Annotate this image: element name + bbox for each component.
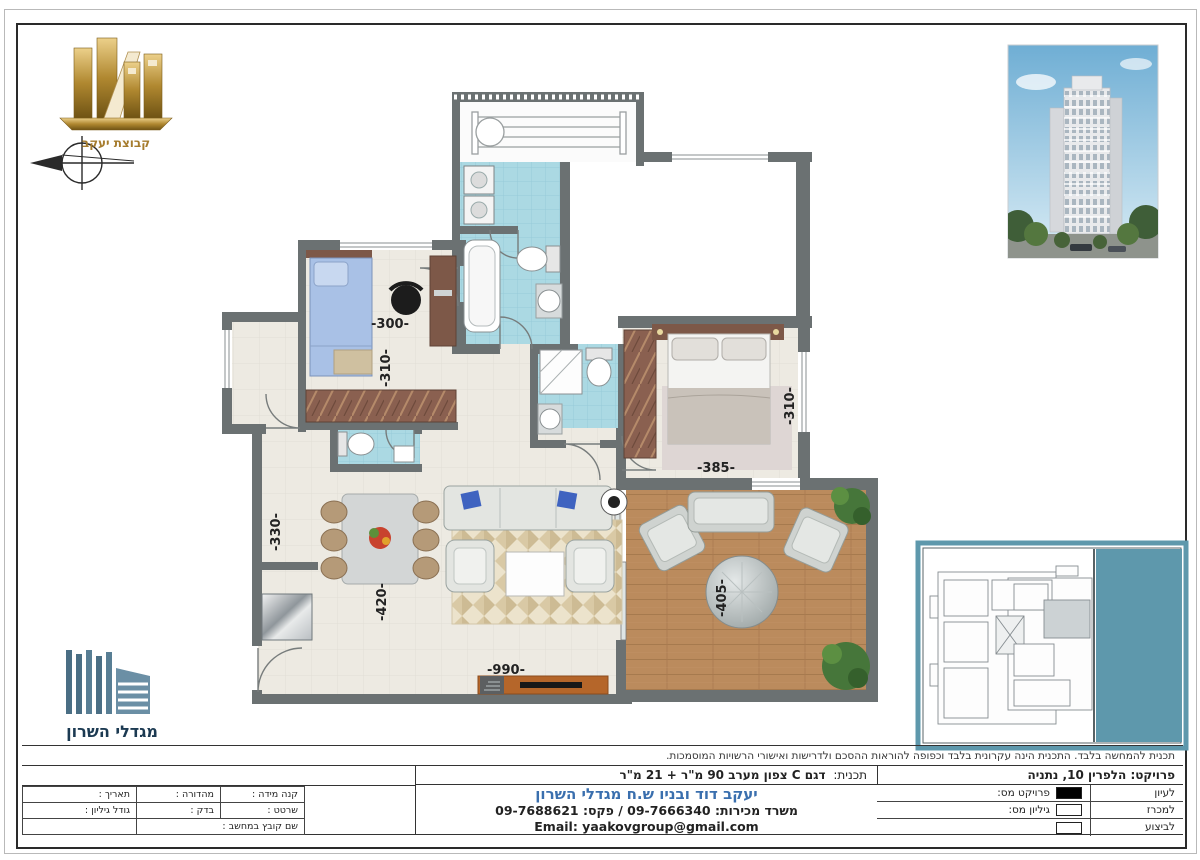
meta-edition: מהדורה : [136,786,221,803]
meta-file-name: שם קובץ במחשב : [136,818,305,835]
window-master [798,352,810,432]
plan-title-label: תכנית: [833,768,867,782]
project-title: פרויקט: הלפרין 10, נתניה [877,766,1183,785]
status-row: למכרז גיליון מס: [877,802,1183,819]
meta-table: קנה מידה : מהדורה : תאריך : שרטט : בדק :… [22,785,415,835]
company-sales-line: משרד מכירות: 09-7666340 / פקס: 09-768862… [416,803,877,819]
status-field-label: גיליון מס: [1008,804,1050,816]
company-name: יעקב דוד ובניו ש.ח מגדלי השרון [416,786,877,803]
status-table: לעיון פרויקט מס: למכרז גיליון מס: לביצוע [877,785,1183,835]
company-email: Email: yaakovgroup@gmail.com [416,819,877,834]
meta-scale: קנה מידה : [220,786,305,803]
sheet-graphics: -300- -310- -385- -310- -330- -420- -990… [0,0,1200,860]
plan-title: תכנית: דגם C צפון מערב 90 מ"ר + 21 מ"ר [415,766,877,785]
status-field [877,819,1090,836]
terrace-door [752,478,800,490]
window-bedroom2 [340,240,432,250]
group-logo [60,38,172,130]
towers-logo [66,650,150,714]
dim-master-depth: -310- [783,387,798,425]
sheet: -300- -310- -385- -310- -330- -420- -990… [0,0,1200,860]
dim-bedroom2-width: -300- [371,317,409,332]
status-label: לעיון [1090,785,1183,801]
floorplan: -300- -310- -385- -310- -330- -420- -990… [222,92,878,704]
dim-master-width: -385- [697,461,735,476]
building-photo [1002,45,1163,258]
window-bay [222,330,232,388]
status-field-label: פרויקט מס: [997,787,1050,799]
tv-cabinet [478,676,608,694]
fridge [262,594,312,640]
status-checkbox [1056,787,1082,799]
master-furniture [624,324,792,470]
dim-living-width: -990- [487,663,525,678]
living-sofa-set [444,486,627,624]
dim-kitchen-width: -330- [269,513,284,551]
meta-checker: בדק : [136,802,221,819]
meta-drafter: שרטט : [220,802,305,819]
dim-bedroom2-depth: -310- [379,349,394,387]
towers-logo-text: מגדלי השרון [66,722,158,741]
group-logo-text: קבוצת יעקב [82,136,150,150]
meta-sheet-size: גודל גיליון : [22,802,137,819]
window-adjacent-room [672,152,768,162]
plant [822,642,870,690]
status-checkbox [1056,822,1082,834]
dining-set [321,494,439,584]
key-plan [918,543,1186,748]
status-field: פרויקט מס: [877,785,1090,801]
status-field: גיליון מס: [877,802,1090,818]
disclaimer-text: תכנית להמחשה בלבד. התכנית הינה עקרונית ב… [22,745,1183,766]
meta-empty-cell [22,818,137,835]
meta-date: תאריך : [22,786,137,803]
dim-living-depth: -420- [375,583,390,621]
status-row: לביצוע [877,819,1183,836]
status-row: לעיון פרויקט מס: [877,785,1183,802]
plan-title-value: דגם C צפון מערב 90 מ"ר + 21 מ"ר [620,768,826,782]
status-label: למכרז [1090,802,1183,818]
dim-terrace-width: -405- [715,579,730,617]
status-checkbox [1056,804,1082,816]
company-block: יעקב דוד ובניו ש.ח מגדלי השרון משרד מכיר… [415,785,877,835]
status-label: לביצוע [1090,819,1183,836]
